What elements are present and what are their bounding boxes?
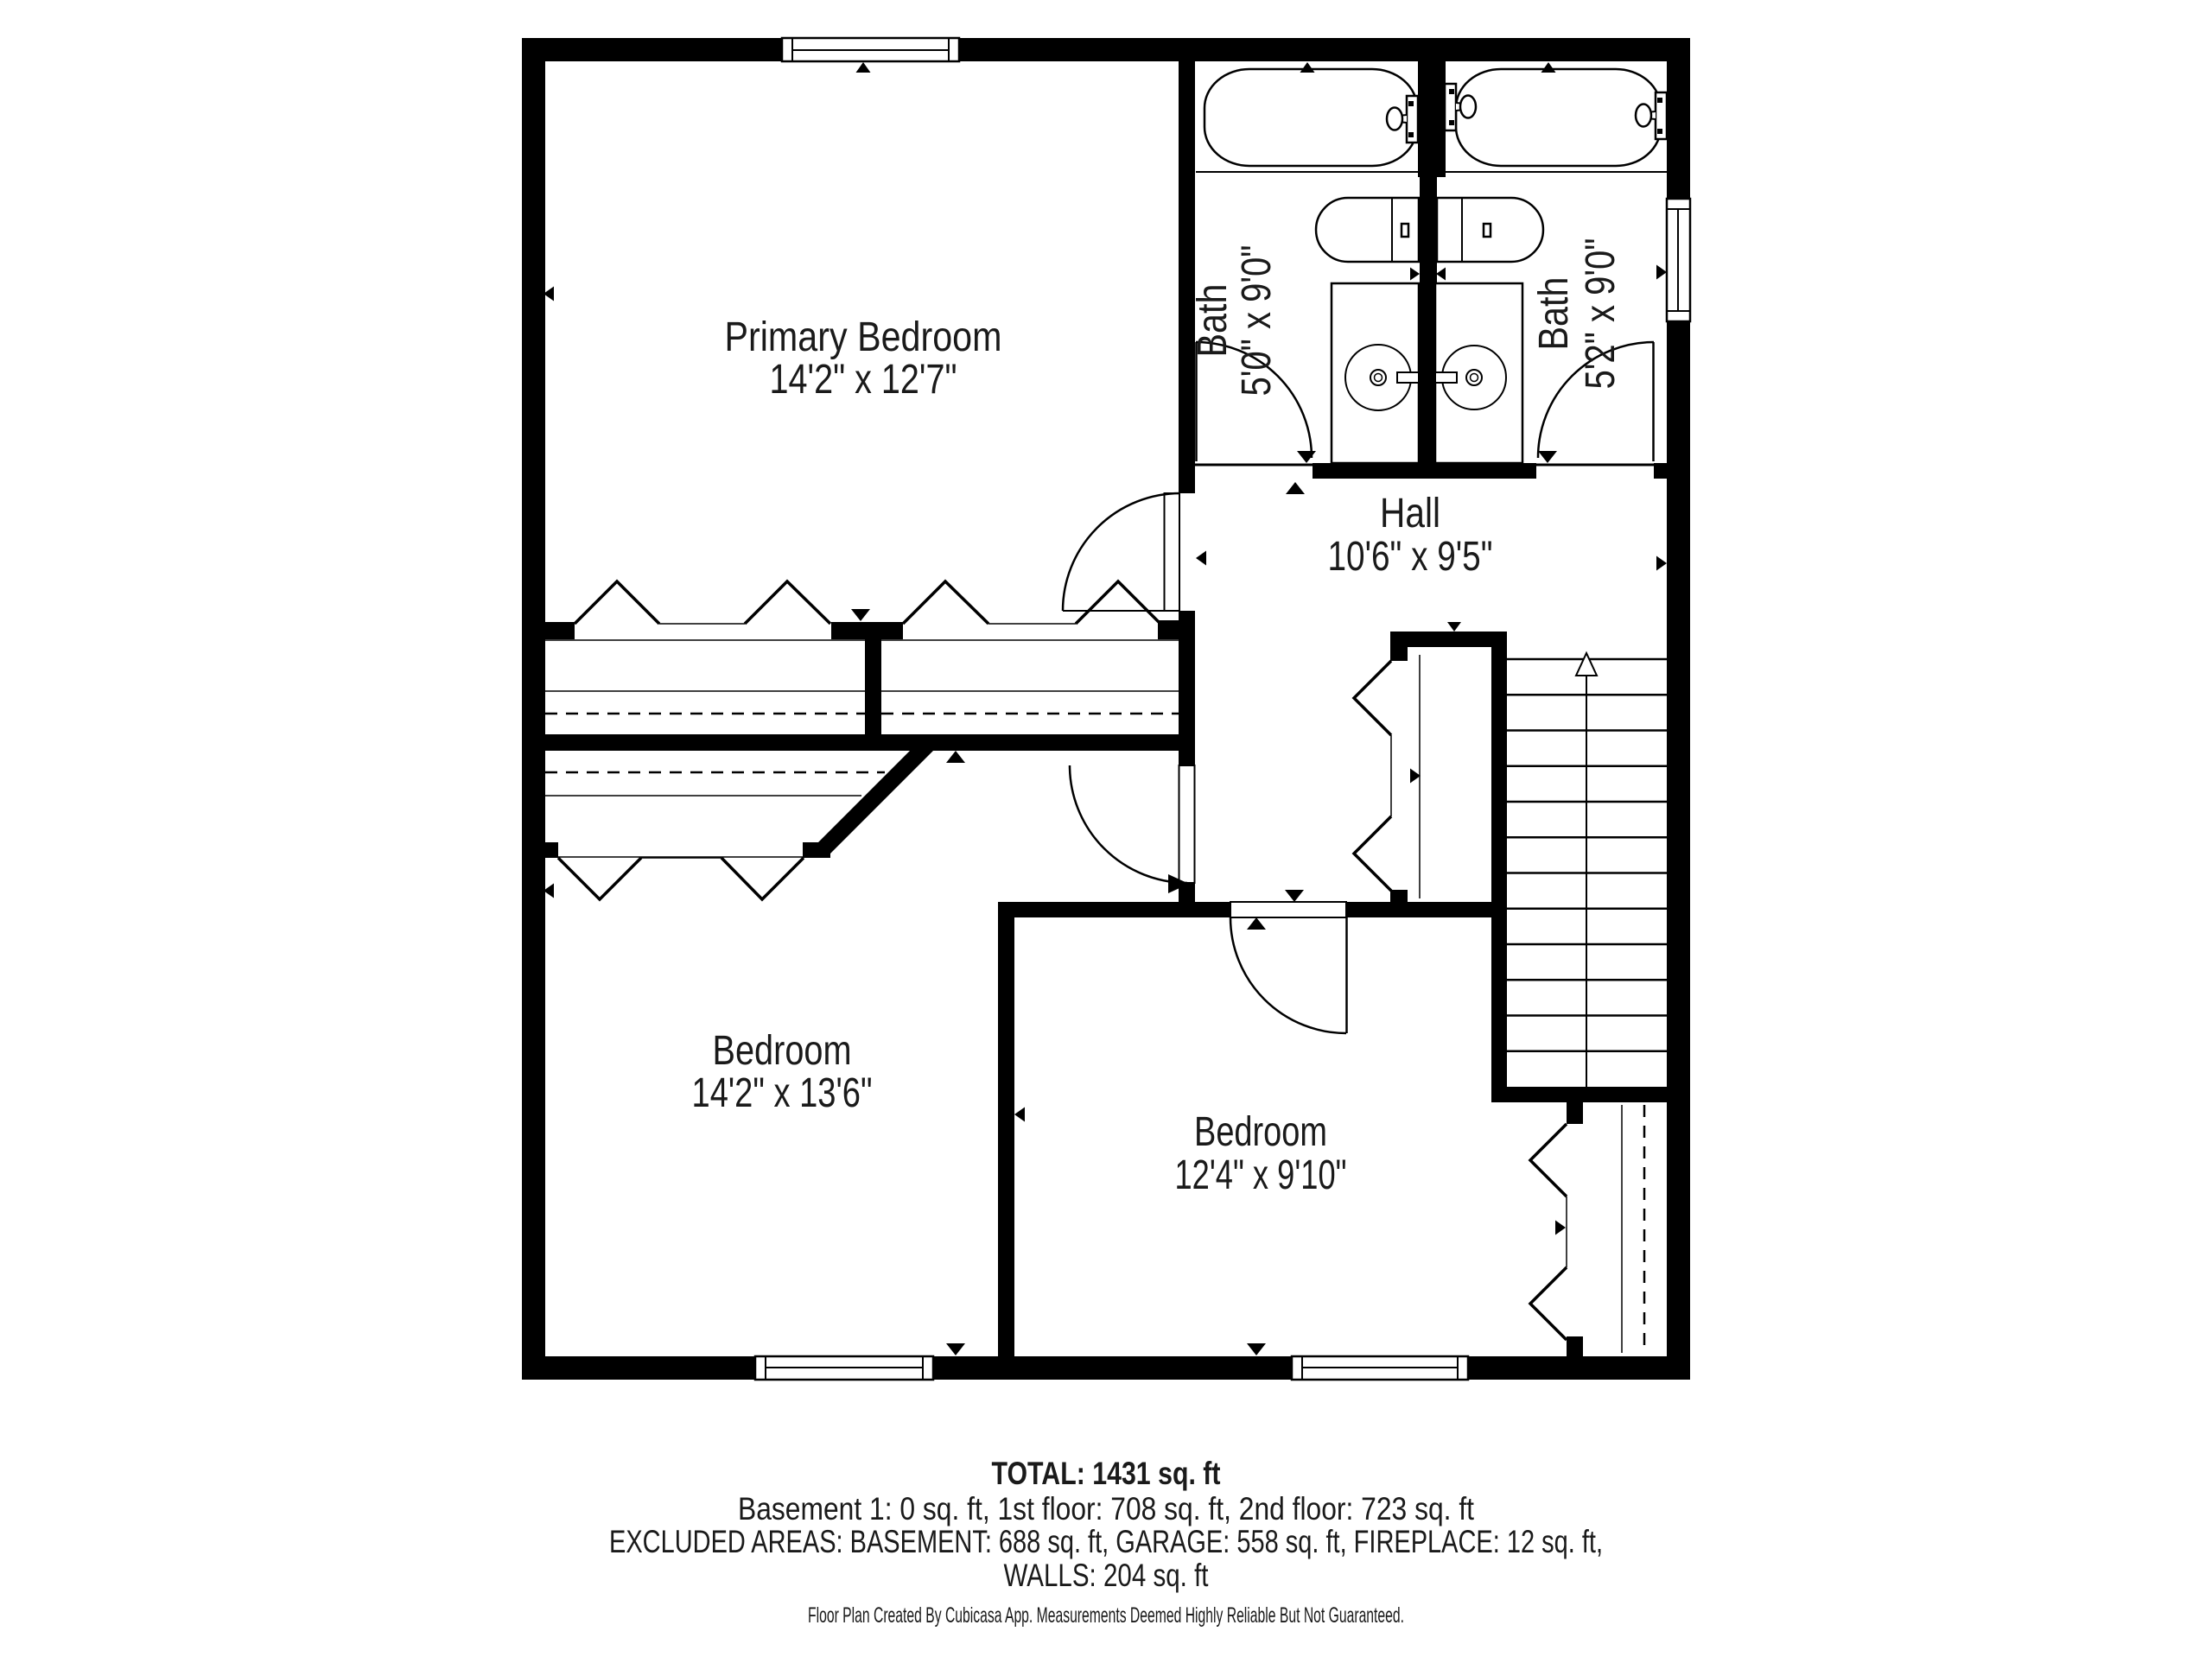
svg-text:5'0" x 9'0": 5'0" x 9'0" [1234, 245, 1280, 397]
svg-text:Floor Plan Created By Cubicasa: Floor Plan Created By Cubicasa App. Meas… [808, 1603, 1404, 1628]
svg-text:Bath: Bath [1190, 284, 1236, 358]
svg-text:14'2" x 13'6": 14'2" x 13'6" [692, 1070, 873, 1116]
svg-text:Bath: Bath [1531, 277, 1577, 351]
svg-text:Bedroom: Bedroom [713, 1028, 852, 1074]
svg-text:Basement 1: 0 sq. ft, 1st floo: Basement 1: 0 sq. ft, 1st floor: 708 sq.… [738, 1491, 1475, 1527]
svg-text:12'4" x 9'10": 12'4" x 9'10" [1175, 1152, 1347, 1198]
svg-text:10'6" x 9'5": 10'6" x 9'5" [1328, 534, 1493, 580]
svg-text:Primary Bedroom: Primary Bedroom [725, 314, 1002, 360]
svg-text:TOTAL: 1431 sq. ft: TOTAL: 1431 sq. ft [992, 1456, 1221, 1491]
svg-text:WALLS: 204 sq. ft: WALLS: 204 sq. ft [1004, 1558, 1210, 1593]
svg-text:Bedroom: Bedroom [1194, 1109, 1327, 1155]
svg-text:5'2" x 9'0": 5'2" x 9'0" [1578, 238, 1624, 390]
svg-text:14'2" x 12'7": 14'2" x 12'7" [770, 357, 957, 403]
svg-text:Hall: Hall [1380, 491, 1440, 536]
svg-text:EXCLUDED AREAS: BASEMENT: 688: EXCLUDED AREAS: BASEMENT: 688 sq. ft, GA… [609, 1524, 1603, 1559]
